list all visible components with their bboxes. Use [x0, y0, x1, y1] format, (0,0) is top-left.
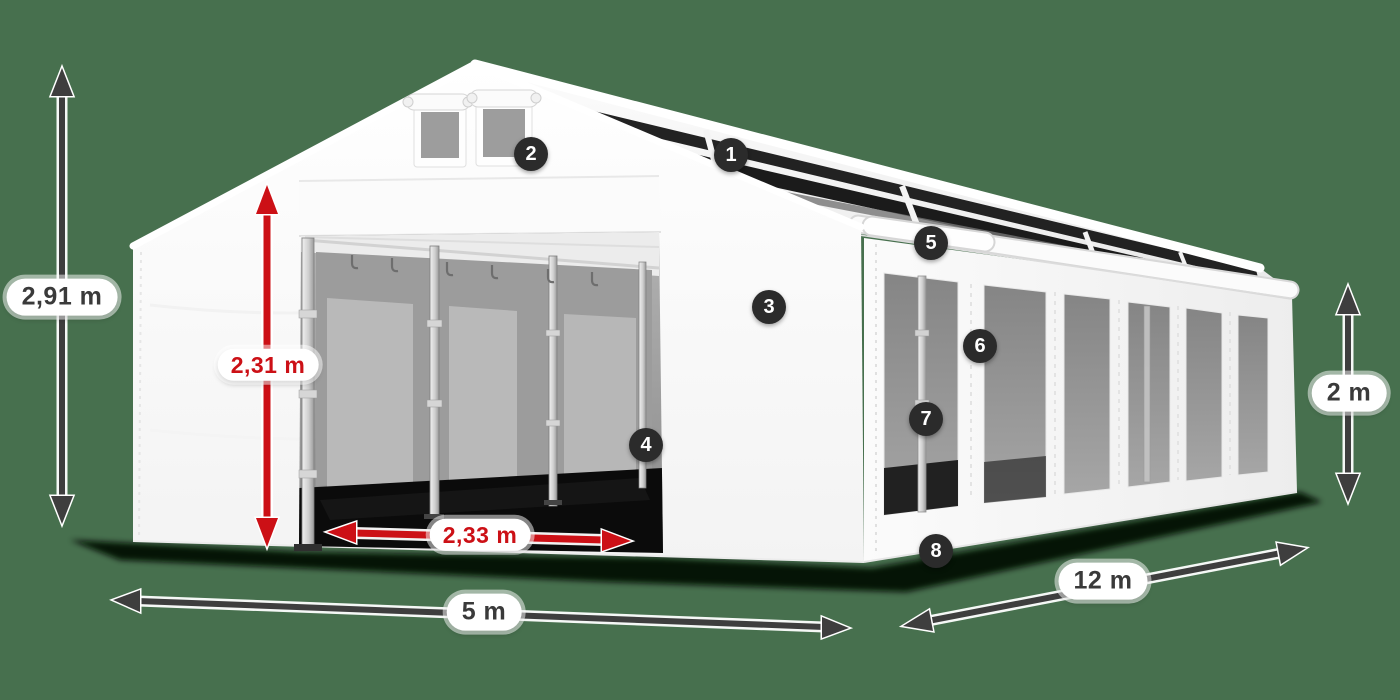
interior-pole — [549, 256, 557, 506]
hotspot-badge-4[interactable]: 4 — [629, 428, 663, 462]
interior-pole — [918, 276, 926, 512]
door-header — [299, 176, 661, 236]
hotspot-badge-6[interactable]: 6 — [963, 329, 997, 363]
gable-vent-left — [403, 94, 473, 167]
interior-pole — [430, 246, 439, 518]
dimension-label-door-width: 2,33 m — [430, 519, 531, 551]
hotspot-badge-8[interactable]: 8 — [919, 534, 953, 568]
tent-product-diagram: 2,91 m 2,31 m 2,33 m 5 m 12 m 2 m 1 2 3 … — [0, 0, 1400, 700]
hotspot-badge-3[interactable]: 3 — [752, 290, 786, 324]
dimension-label-side-height: 2 m — [1312, 375, 1387, 412]
side-window — [1186, 308, 1222, 481]
side-window — [1238, 315, 1268, 475]
tent-illustration — [0, 0, 1400, 700]
dimension-label-door-height: 2,31 m — [218, 349, 319, 381]
hotspot-badge-7[interactable]: 7 — [909, 402, 943, 436]
vent-roller — [470, 90, 538, 107]
hotspot-badge-1[interactable]: 1 — [714, 138, 748, 172]
dimension-label-length: 12 m — [1059, 563, 1148, 600]
vent-roller — [406, 94, 470, 110]
hotspot-badge-2[interactable]: 2 — [514, 137, 548, 171]
hotspot-badge-5[interactable]: 5 — [914, 226, 948, 260]
dimension-label-width: 5 m — [447, 594, 522, 631]
dimension-label-total-height: 2,91 m — [7, 279, 118, 316]
door-opening — [295, 228, 667, 558]
side-window — [1064, 294, 1110, 494]
